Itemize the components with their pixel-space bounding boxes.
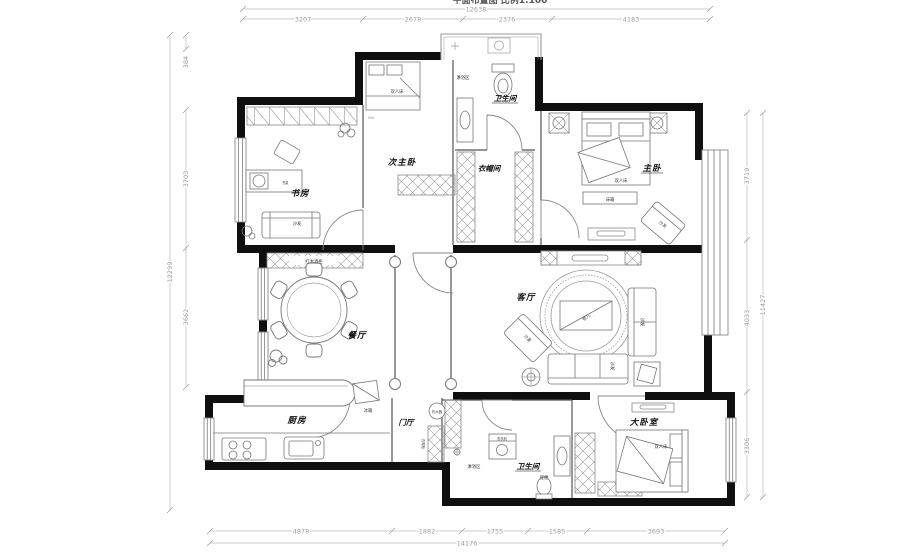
bedroom-furniture <box>616 430 688 492</box>
room-label-foyer: 门厅 <box>399 418 415 427</box>
dim-left-1: 384 <box>182 56 190 68</box>
dim-bottom-1: 4878 <box>293 528 310 536</box>
dim-bottom-5: 3693 <box>648 528 665 536</box>
dim-top-overall: 12638 <box>466 6 487 14</box>
label-double-bed-bedroom: 双人床 <box>655 443 669 450</box>
room-label-bath-bottom: 卫生间 <box>517 462 541 471</box>
dim-right-2: 4033 <box>743 310 751 327</box>
living-furniture <box>503 270 660 386</box>
floor-plan-page: 平面布置图 比例1:100 <box>0 0 920 560</box>
dim-top-4: 4183 <box>623 16 640 24</box>
label-desk: 书桌 <box>282 180 289 185</box>
label-fridge: 冰箱 <box>364 407 373 414</box>
label-sofa-living-right: 沙发 <box>639 318 646 327</box>
top-shower-bay <box>441 34 541 60</box>
sec-master-furniture <box>366 62 420 110</box>
corridor-columns <box>390 257 457 390</box>
label-coat-cabinet: 衣帽柜 <box>421 439 426 450</box>
dim-left-overall: 12299 <box>166 262 174 283</box>
room-label-sec-master: 次主卧 <box>388 157 417 168</box>
label-washer: 洗衣机 <box>497 436 508 441</box>
label-shower-area-bottom: 淋浴区 <box>468 463 482 470</box>
dim-bottom-2: 1882 <box>419 528 436 536</box>
dim-top-3: 2376 <box>499 16 516 24</box>
room-label-living: 客厅 <box>516 292 536 303</box>
dim-right-1: 3719 <box>743 168 751 185</box>
label-double-bed-master: 双人床 <box>615 177 629 184</box>
dim-top-2: 2678 <box>405 16 422 24</box>
label-shower-area-top: 淋浴区 <box>457 74 471 81</box>
label-sofa-study: 沙发 <box>293 220 302 227</box>
dim-bottom-overall: 14176 <box>457 540 478 548</box>
room-label-kitchen: 厨房 <box>286 415 307 426</box>
label-wine-cabinet: 红木酒柜 <box>305 258 323 265</box>
room-label-big-bedroom: 大卧室 <box>629 417 659 428</box>
label-toilet: 座便 <box>540 474 549 481</box>
room-label-cloakroom: 衣帽间 <box>478 164 502 173</box>
dim-bottom-4: 1585 <box>549 528 566 536</box>
dim-left-3: 3662 <box>182 309 190 326</box>
room-label-master: 主卧 <box>642 163 662 174</box>
dim-top-1: 3207 <box>295 16 312 24</box>
floor-plan-drawing: 平面布置图 比例1:100 <box>0 0 920 560</box>
dim-left-2: 3703 <box>182 171 190 188</box>
label-sofa-living-bottom: 沙发 <box>609 362 616 371</box>
dim-right-overall: 11427 <box>759 295 767 316</box>
label-double-bed-secmaster: 双人床 <box>391 88 405 95</box>
label-water-heater: 热水器 <box>432 409 443 414</box>
label-bed-bench: 床箱 <box>606 196 615 203</box>
dim-right-3: 3306 <box>743 438 751 455</box>
room-label-bath-top: 卫生间 <box>494 94 518 103</box>
dim-bottom-3: 1755 <box>487 528 504 536</box>
bay-window <box>702 150 728 335</box>
room-label-study: 书房 <box>290 188 310 199</box>
dim-bed-width: 550 <box>368 116 376 120</box>
room-label-dining: 餐厅 <box>347 330 367 341</box>
